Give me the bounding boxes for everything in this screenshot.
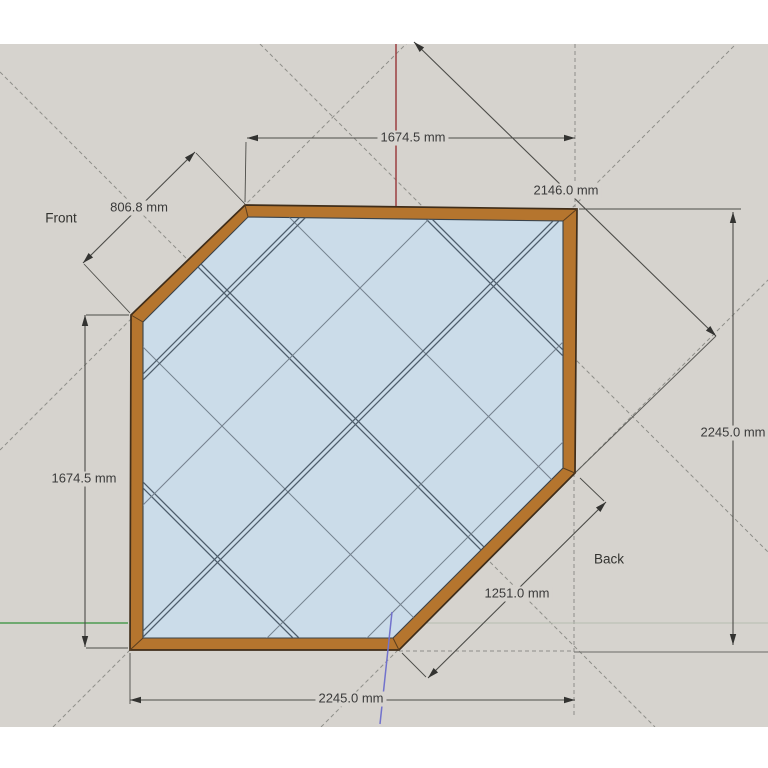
dimension-arrowhead (564, 697, 575, 703)
dimension-arrowhead (82, 315, 88, 326)
dimension-label-top-width: 1674.5 mm (377, 131, 448, 146)
floor-plan-drawing (0, 0, 768, 768)
dimension-extension-line (196, 153, 245, 204)
dimension-arrowhead (247, 135, 258, 141)
dimension-label-front-edge: 806.8 mm (107, 201, 171, 216)
dimension-label-bottom-width: 2245.0 mm (315, 692, 386, 707)
dimension-extension-line (402, 653, 426, 677)
dimension-label-right-height: 2245.0 mm (697, 426, 768, 441)
dimension-arrowhead (82, 636, 88, 647)
dimension-arrowhead (730, 212, 736, 223)
dimension-extension-line (245, 142, 246, 202)
sketchup-canvas: 1674.5 mm 2146.0 mm 1674.5 mm 2245.0 mm … (0, 0, 768, 768)
dimension-label-diagonal: 2146.0 mm (530, 184, 601, 199)
dimension-label-back-edge: 1251.0 mm (481, 587, 552, 602)
dimension-arrowhead (564, 135, 575, 141)
dimension-label-left-height: 1674.5 mm (48, 472, 119, 487)
dimension-arrowhead (730, 634, 736, 645)
front-side-label: Front (45, 211, 77, 226)
dimension-extension-line (580, 478, 604, 501)
solid-guide-line (575, 336, 716, 473)
dimension-extension-line (84, 264, 130, 313)
back-side-label: Back (594, 552, 624, 567)
dimension-arrowhead (130, 697, 141, 703)
